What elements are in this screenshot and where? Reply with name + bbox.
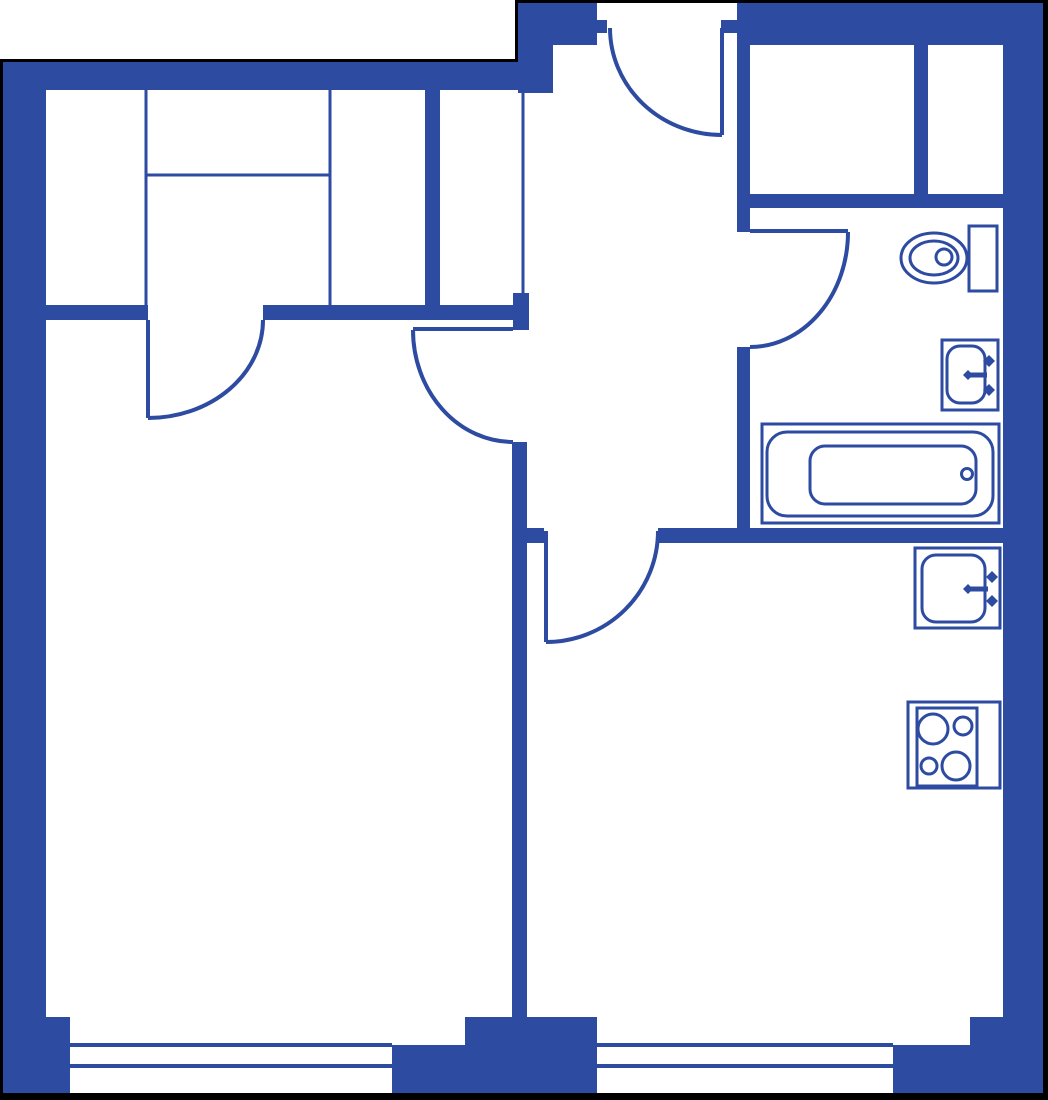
bottom-left-pier (3, 1017, 70, 1093)
top-wall-left-of-entrance (553, 3, 597, 45)
bottom-right-pier-upper (970, 1017, 1043, 1045)
top-right-exterior-wall (737, 3, 1043, 45)
closet-bottom-wall (737, 194, 1003, 208)
bottom-right-pier-lower (893, 1045, 1043, 1093)
bedroom-living-wall-right (263, 305, 513, 320)
living-kitchen-wall (512, 442, 527, 1017)
floor-plan (0, 0, 1048, 1100)
outline-right (1043, 0, 1048, 1100)
outline-step (515, 0, 518, 62)
floor-plan-drawing (0, 0, 1048, 1100)
entrance-left-jamb (597, 20, 607, 33)
outline-left (0, 59, 3, 1100)
right-exterior-wall (1003, 3, 1043, 1017)
bedroom-living-wall-left (46, 305, 148, 320)
outline-bottom (0, 1093, 1048, 1100)
hall-bathroom-wall-lower (737, 347, 750, 543)
toilet-part (969, 226, 997, 291)
bottom-center-pier-lower (392, 1045, 597, 1093)
kitchen-bathroom-wall (658, 528, 1005, 543)
top-left-exterior-wall (3, 62, 553, 90)
outline-top-right (515, 0, 1048, 3)
bottom-center-pier-upper (465, 1017, 597, 1045)
bedroom-right-wall (425, 90, 440, 305)
hall-door-jamb-block (513, 293, 529, 330)
entry-step-pier (518, 3, 553, 93)
left-exterior-wall (3, 62, 46, 1017)
closet-divider-wall (914, 45, 928, 194)
